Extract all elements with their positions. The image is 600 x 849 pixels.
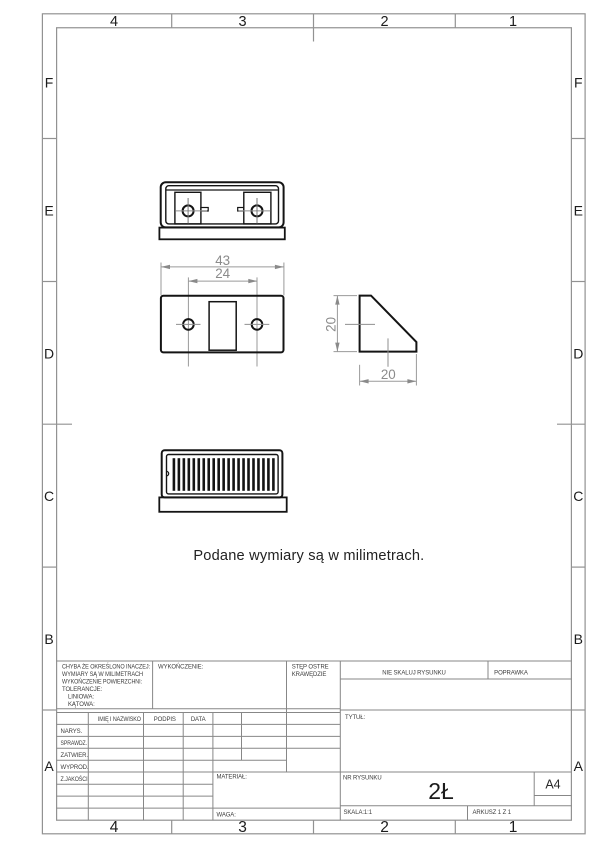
svg-text:KĄTOWA:: KĄTOWA:	[68, 702, 95, 708]
svg-text:WYKOŃCZENIE POWIERZCHNI:: WYKOŃCZENIE POWIERZCHNI:	[62, 679, 142, 686]
svg-text:E: E	[574, 203, 583, 219]
svg-text:STĘP OSTRE: STĘP OSTRE	[292, 665, 329, 671]
svg-text:PODPIS: PODPIS	[154, 717, 176, 723]
svg-text:TOLERANCJE:: TOLERANCJE:	[62, 687, 103, 693]
svg-text:F: F	[574, 75, 583, 91]
svg-text:A: A	[44, 758, 54, 774]
svg-text:B: B	[44, 631, 53, 647]
svg-text:SKALA:1:1: SKALA:1:1	[344, 810, 373, 816]
svg-text:CHYBA ŻE OKREŚLONO INACZEJ:: CHYBA ŻE OKREŚLONO INACZEJ:	[62, 663, 150, 671]
svg-text:2: 2	[380, 819, 389, 836]
svg-text:Z.JAKOŚCI: Z.JAKOŚCI	[61, 775, 88, 783]
svg-text:20: 20	[381, 367, 396, 382]
svg-text:KRAWĘDZIE: KRAWĘDZIE	[292, 672, 327, 678]
svg-text:4: 4	[110, 14, 118, 30]
svg-text:NARYS.: NARYS.	[61, 729, 83, 735]
svg-text:ZATWIER.: ZATWIER.	[61, 753, 89, 759]
svg-text:C: C	[44, 488, 54, 504]
svg-text:D: D	[573, 346, 583, 362]
svg-text:Podane wymiary są w milimetrac: Podane wymiary są w milimetrach.	[193, 548, 424, 564]
svg-text:A4: A4	[545, 778, 560, 792]
svg-text:MATERIAŁ:: MATERIAŁ:	[217, 775, 248, 781]
svg-text:1: 1	[509, 14, 517, 30]
svg-text:WYMIARY SĄ W MILIMETRACH: WYMIARY SĄ W MILIMETRACH	[62, 672, 143, 678]
svg-text:POPRAWKA: POPRAWKA	[494, 671, 528, 677]
svg-text:NIE SKALUJ RYSUNKU: NIE SKALUJ RYSUNKU	[382, 671, 445, 677]
svg-text:LINIOWA:: LINIOWA:	[68, 695, 94, 701]
svg-text:4: 4	[110, 819, 119, 836]
svg-text:1: 1	[509, 819, 518, 836]
svg-text:DATA: DATA	[191, 717, 206, 723]
svg-text:C: C	[573, 488, 583, 504]
svg-text:NR RYSUNKU: NR RYSUNKU	[343, 776, 382, 782]
svg-text:IMIĘ I NAZWISKO: IMIĘ I NAZWISKO	[98, 717, 141, 723]
svg-text:3: 3	[238, 14, 246, 30]
svg-text:ARKUSZ 1 Z 1: ARKUSZ 1 Z 1	[473, 810, 512, 816]
svg-text:WAGA:: WAGA:	[217, 813, 237, 819]
svg-text:B: B	[574, 631, 583, 647]
svg-text:TYTUŁ:: TYTUŁ:	[345, 715, 366, 721]
svg-text:A: A	[574, 758, 584, 774]
svg-text:2Ł: 2Ł	[428, 778, 454, 804]
svg-text:D: D	[44, 346, 54, 362]
svg-text:20: 20	[324, 317, 339, 332]
svg-text:WYKOŃCZENIE:: WYKOŃCZENIE:	[158, 664, 204, 671]
svg-text:3: 3	[238, 819, 247, 836]
svg-text:F: F	[45, 75, 54, 91]
svg-text:WYPROD.: WYPROD.	[61, 765, 89, 771]
svg-text:2: 2	[380, 14, 388, 30]
svg-text:SPRAWDZ.: SPRAWDZ.	[61, 741, 88, 747]
svg-text:E: E	[44, 203, 53, 219]
svg-text:24: 24	[215, 266, 230, 281]
